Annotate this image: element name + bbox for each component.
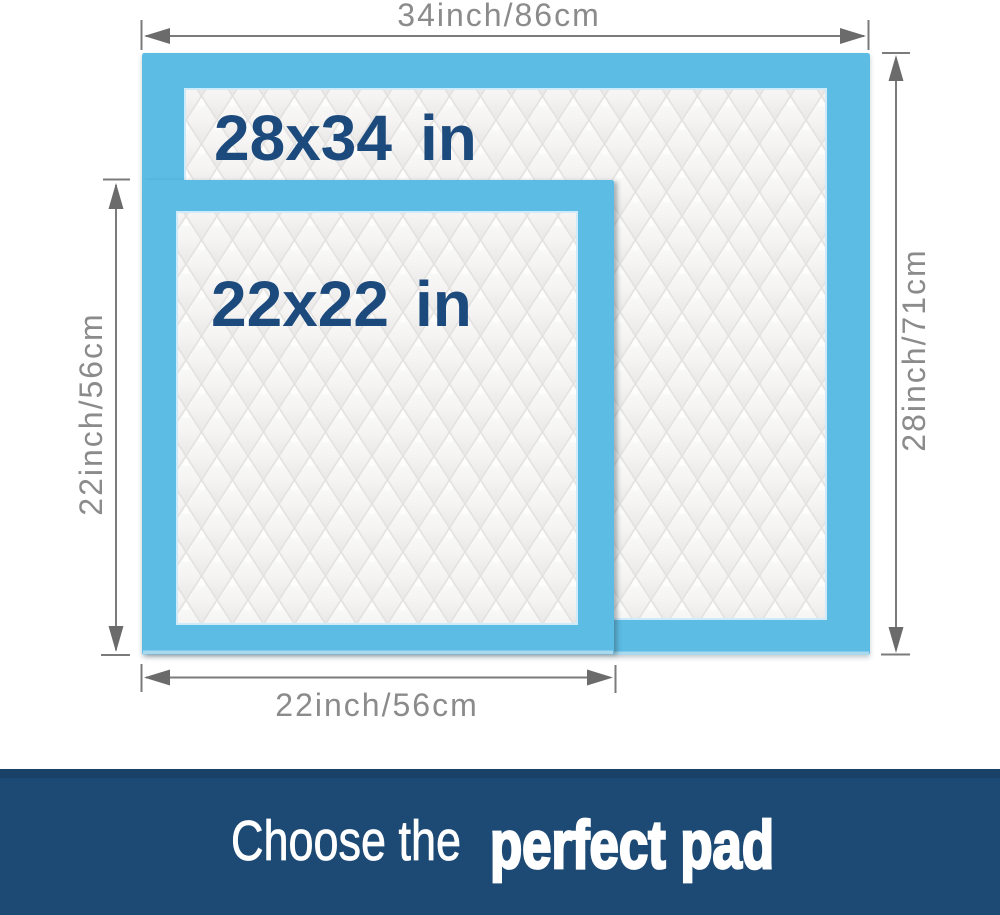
svg-text:in: in — [415, 268, 472, 340]
svg-text:28inch/71cm: 28inch/71cm — [896, 248, 932, 451]
svg-text:22inch/56cm: 22inch/56cm — [275, 687, 478, 723]
svg-text:22x22: 22x22 — [211, 268, 389, 340]
svg-text:34inch/86cm: 34inch/86cm — [397, 0, 600, 33]
svg-text:28x34: 28x34 — [214, 102, 392, 174]
svg-text:perfect pad: perfect pad — [490, 807, 774, 883]
svg-text:in: in — [420, 102, 477, 174]
svg-text:22inch/56cm: 22inch/56cm — [73, 312, 109, 515]
svg-text:Choose the: Choose the — [231, 809, 461, 873]
